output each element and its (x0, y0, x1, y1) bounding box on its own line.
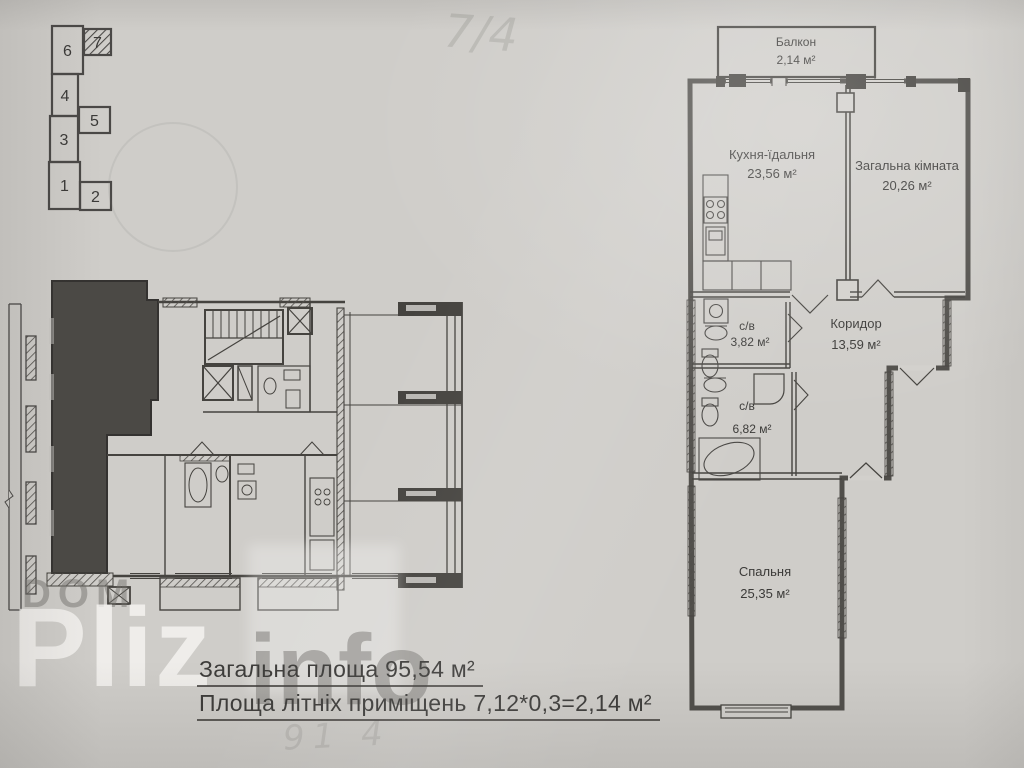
kitchen-counter (703, 175, 728, 261)
room-name-kitchen: Кухня-їдальня (729, 147, 815, 162)
section-label-6: 6 (63, 43, 72, 60)
section-blocks (49, 26, 111, 210)
bedroom-window (721, 705, 791, 718)
floorplan-photo: 6 7 4 5 3 1 2 (0, 0, 1024, 768)
entrance-door (900, 368, 934, 385)
handwritten-note-top: 7/4 (442, 3, 520, 62)
section-label-5: 5 (90, 113, 99, 130)
room-name-living: Загальна кімната (855, 158, 960, 173)
stair-core (158, 298, 345, 400)
section-label-1: 1 (60, 178, 69, 195)
room-area-bath-small: 3,82 м² (731, 335, 770, 349)
room-name-bath-small: с/в (739, 319, 755, 333)
left-balcony-strip (5, 304, 36, 610)
washing-machine (704, 299, 728, 323)
area-summary: Загальна площа 95,54 м² Площа літніх при… (197, 656, 660, 721)
highlighted-apartment (47, 281, 158, 586)
room-area-balcony: 2,14 м² (777, 53, 816, 67)
room-name-bedroom: Спальня (739, 564, 791, 579)
section-label-3: 3 (60, 132, 69, 149)
room-area-corridor: 13,59 м² (831, 337, 881, 352)
room-name-corridor: Коридор (830, 316, 881, 331)
room-name-balcony: Балкон (776, 35, 816, 49)
room-area-kitchen: 23,56 м² (747, 166, 797, 181)
shower-corner (754, 374, 784, 404)
section-label-4: 4 (61, 88, 70, 105)
sink-small-bath (705, 326, 727, 340)
room-area-bedroom: 25,35 м² (740, 586, 790, 601)
room-area-living: 20,26 м² (882, 178, 932, 193)
bathtub (699, 438, 760, 480)
apartment-plan: Балкон 2,14 м² Кухня-їдальня 23,56 м² За… (680, 18, 1000, 743)
section-label-2: 2 (91, 189, 100, 206)
faint-stamp-circle (108, 122, 238, 252)
sink-big-bath (704, 378, 726, 392)
section-label-7: 7 (93, 35, 102, 52)
room-name-bath-big: с/в (739, 399, 755, 413)
toilet-small-bath (702, 355, 718, 377)
apartment-outer-walls (690, 81, 968, 708)
highlighted-apartment-fill (52, 281, 158, 573)
total-area-line: Загальна площа 95,54 м² (197, 656, 483, 687)
toilet-big-bath (702, 404, 718, 426)
wall-hatching (687, 300, 951, 638)
interior-walls (690, 85, 965, 481)
room-area-bath-big: 6,82 м² (733, 422, 772, 436)
apartment-bottom-wall (47, 573, 113, 586)
summer-area-line: Площа літніх приміщень 7,12*0,3=2,14 м² (197, 690, 660, 721)
